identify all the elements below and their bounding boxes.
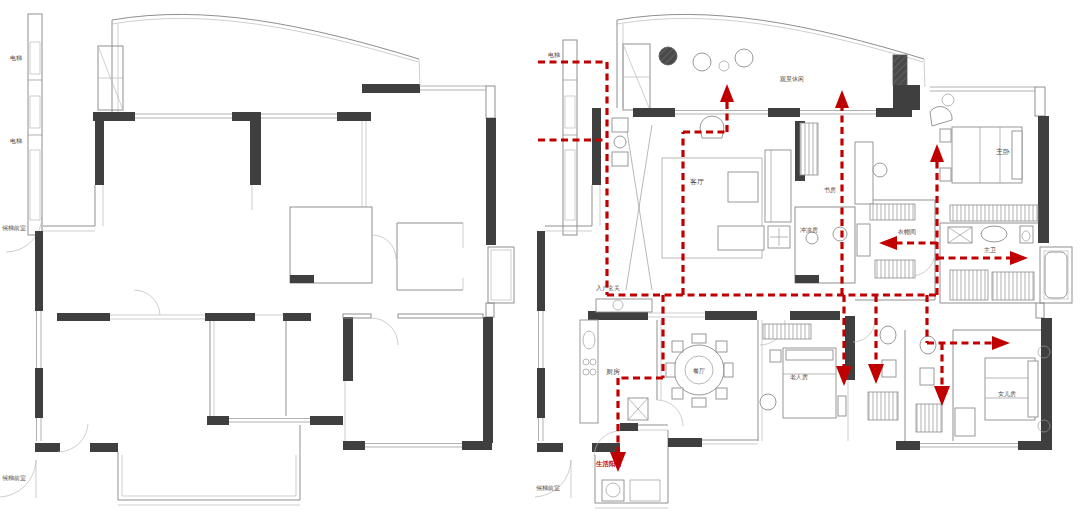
room-label-daughter-room: 女儿房 <box>998 390 1016 397</box>
room-label-elder-room: 老人房 <box>790 373 808 380</box>
floor-plan-right: 电梯 观景休闲 客厅 书房 冲凉房 主卧 衣帽间 主卫 入户玄关 厨房 餐厅 老… <box>535 14 1072 508</box>
room-label-elevator-lobby-bottom: 候梯前室 <box>2 474 26 481</box>
left-walls-layer <box>0 14 514 505</box>
floor-plan-left: 电梯 电梯 候梯前室 候梯前室 <box>0 14 514 505</box>
room-label-elevator-2: 电梯 <box>10 138 22 144</box>
room-label-master-bath: 主卫 <box>984 246 996 253</box>
room-label-dining-room: 餐厅 <box>693 367 705 374</box>
room-label-kitchen: 厨房 <box>606 368 620 375</box>
right-walls-layer <box>535 14 1072 508</box>
room-label-cloakroom: 衣帽间 <box>897 228 916 236</box>
room-label-elevator-lobby-mid: 候梯前室 <box>2 224 26 231</box>
room-label-service-balcony: 生活阳台 <box>595 460 622 468</box>
floor-plan-figure: 电梯 电梯 候梯前室 候梯前室 <box>0 0 1080 518</box>
room-label-elevator-lobby-right: 候梯前室 <box>536 484 560 491</box>
room-label-balcony-leisure: 观景休闲 <box>779 76 804 83</box>
room-label-entry-foyer: 入户玄关 <box>596 284 620 291</box>
left-labels-layer: 电梯 电梯 候梯前室 候梯前室 <box>2 55 26 481</box>
room-label-master-bedroom: 主卧 <box>996 147 1010 155</box>
room-label-living-room: 客厅 <box>690 178 704 185</box>
room-label-elevator: 电梯 <box>548 52 560 58</box>
room-label-study: 书房 <box>824 186 836 193</box>
room-label-shower-room: 冲凉房 <box>800 226 818 233</box>
floor-plans-svg: 电梯 电梯 候梯前室 候梯前室 <box>0 0 1080 518</box>
room-label-elevator-1: 电梯 <box>10 55 22 61</box>
